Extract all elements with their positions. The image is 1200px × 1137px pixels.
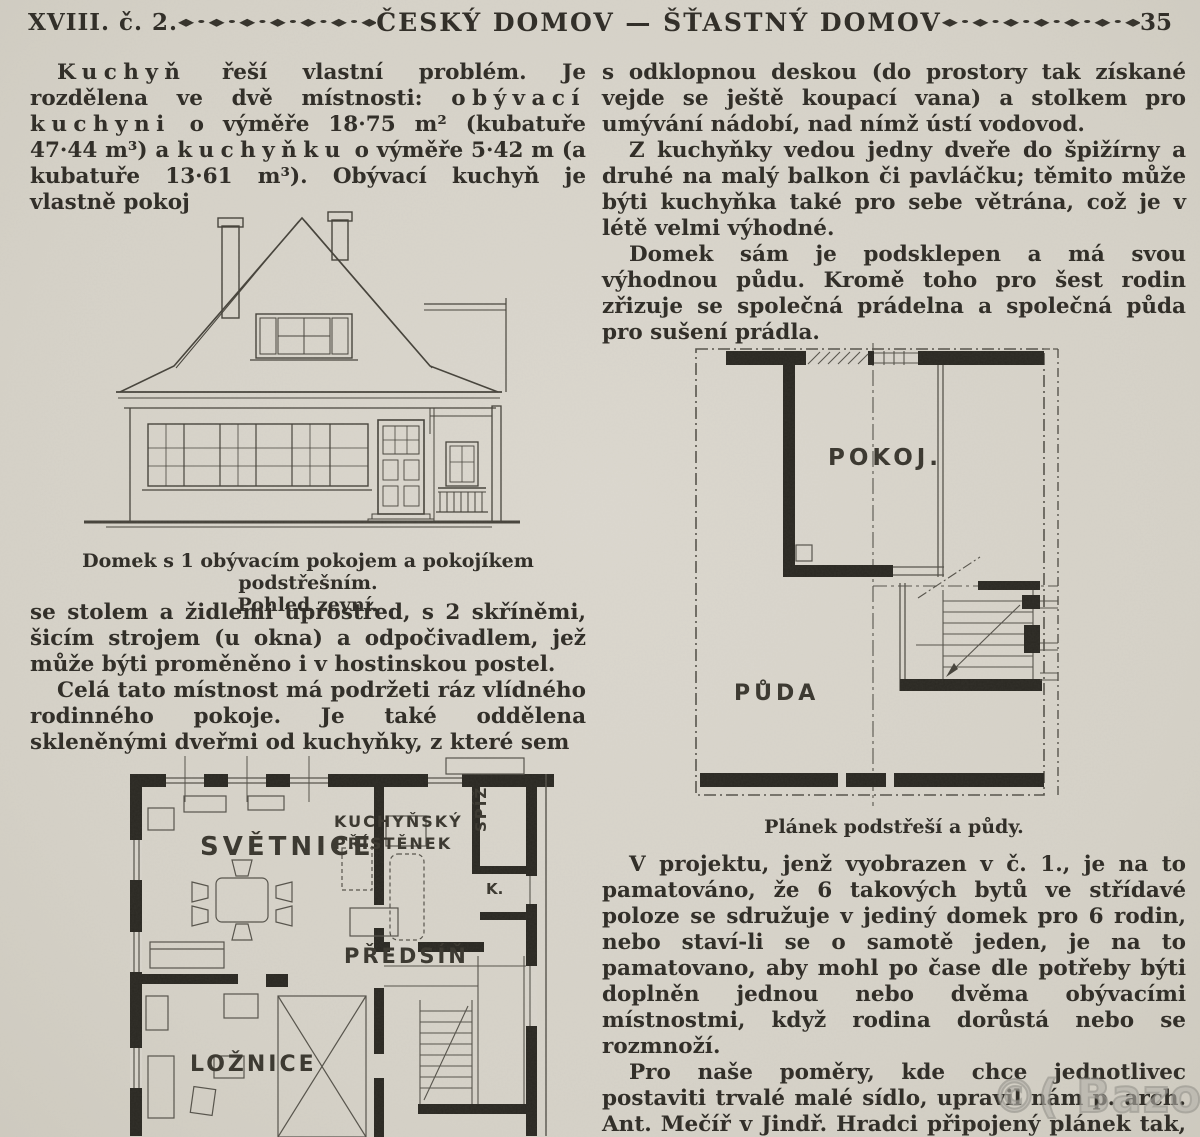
right-paragraph-2: Z kuchyňky vedou jedny dveře do špižírny… <box>602 138 1186 242</box>
room-label-puda: PŮDA <box>734 681 819 706</box>
left-paragraphs-2-3: se stolem a židlemi uprostřed, s 2 skřín… <box>30 600 586 756</box>
page-number: 35 <box>1140 9 1172 36</box>
emphasized-word: Kuchyň <box>57 60 186 85</box>
house-elevation-figure <box>72 194 536 538</box>
page-header: XVIII. č. 2. ◆•◆•◆•◆•◆•◆•◆ ČESKÝ DOMOV —… <box>28 4 1172 40</box>
house-elevation-drawing <box>72 194 536 538</box>
left-paragraph-3: Celá tato místnost má podržeti ráz vlídn… <box>30 678 586 756</box>
caption-line-1: Domek s 1 obývacím pokojem a pokojíkem p… <box>30 550 586 594</box>
room-label-kuchynsky: KUCHYŇSKÝ <box>334 812 463 831</box>
attic-plan-caption: Plánek podstřeší a půdy. <box>602 816 1186 838</box>
magazine-page: XVIII. č. 2. ◆•◆•◆•◆•◆•◆•◆ ČESKÝ DOMOV —… <box>0 0 1200 1137</box>
left-paragraph-2: se stolem a židlemi uprostřed, s 2 skřín… <box>30 600 586 678</box>
caption-line: Plánek podstřeší a půdy. <box>602 816 1186 838</box>
ornament-left: ◆•◆•◆•◆•◆•◆•◆ <box>178 16 376 28</box>
paragraph-text: Kuchyň řeší vlastní problém. Je rozdělen… <box>30 60 586 216</box>
attic-plan-figure: POKOJ. PŮDA <box>688 343 1112 808</box>
room-label-pokoj: POKOJ. <box>828 445 942 471</box>
ornament-right: ◆•◆•◆•◆•◆•◆•◆ <box>942 16 1140 28</box>
masthead-title: ČESKÝ DOMOV — ŠŤASTNÝ DOMOV <box>376 8 942 37</box>
right-paragraph-3: Domek sám je podsklepen a má svou výhodn… <box>602 242 1186 346</box>
issue-number: XVIII. č. 2. <box>28 9 178 36</box>
right-paragraphs-1-3: s odklopnou deskou (do prostory tak získ… <box>602 60 1186 346</box>
left-paragraph-1: Kuchyň řeší vlastní problém. Je rozdělen… <box>30 60 586 216</box>
emphasized-word: kuchyňku <box>177 138 347 163</box>
room-label-k: K. <box>486 880 503 898</box>
attic-plan-drawing <box>688 343 1112 808</box>
room-label-pristenek: PŘÍSTĚNEK <box>334 834 452 853</box>
right-paragraph-4: V projektu, jenž vyobrazen v č. 1., je n… <box>602 852 1186 1060</box>
ground-floor-plan-figure: SVĚTNICE KUCHYŇSKÝ PŘÍSTĚNEK SPÍŽ K. PŘE… <box>128 756 560 1137</box>
room-label-predsin: PŘEDSÍŇ <box>344 944 469 968</box>
room-label-spiz: SPÍŽ <box>472 786 490 832</box>
right-paragraph-1: s odklopnou deskou (do prostory tak získ… <box>602 60 1186 138</box>
watermark: ©( Bazos.sk <box>992 1070 1200 1123</box>
room-label-loznice: LOŽNICE <box>190 1052 317 1077</box>
